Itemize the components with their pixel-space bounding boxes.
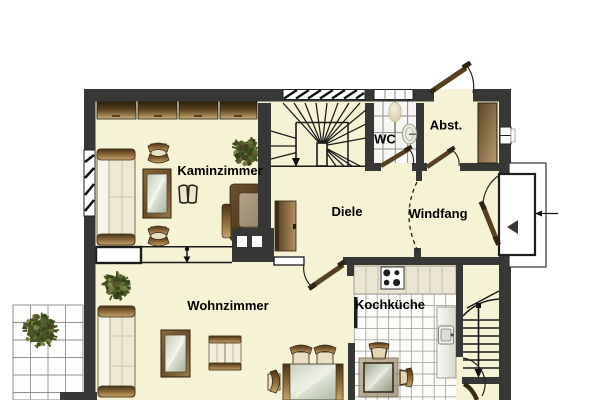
svg-text:Abst.: Abst. bbox=[430, 118, 463, 133]
svg-text:Windfang: Windfang bbox=[408, 206, 467, 221]
svg-text:Diele: Diele bbox=[331, 204, 362, 219]
svg-text:WC: WC bbox=[374, 132, 396, 147]
svg-text:Wohnzimmer: Wohnzimmer bbox=[187, 298, 268, 313]
svg-text:Kochküche: Kochküche bbox=[355, 297, 425, 312]
svg-text:Kaminzimmer: Kaminzimmer bbox=[177, 163, 262, 178]
